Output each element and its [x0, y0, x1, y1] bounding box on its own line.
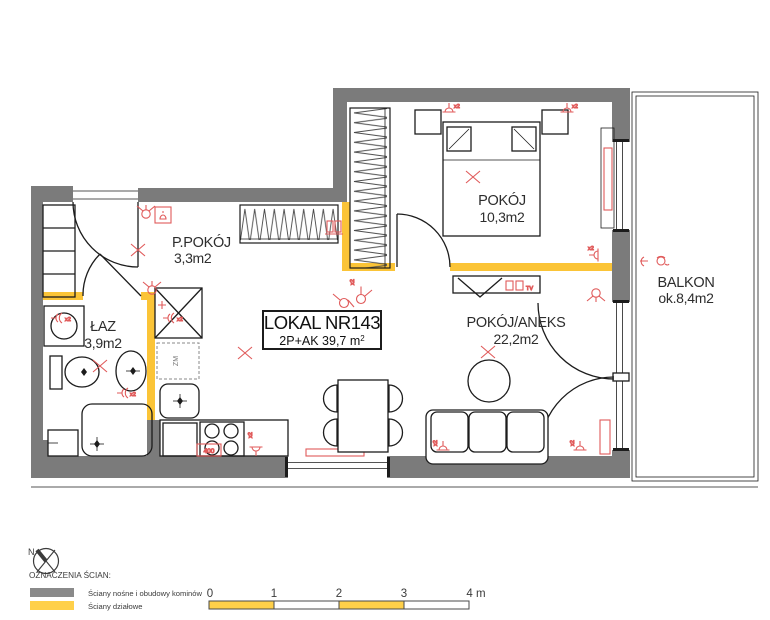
- nightstand: [415, 110, 441, 134]
- svg-text:x2: x2: [248, 432, 254, 438]
- light-point-symbol: [137, 205, 155, 218]
- room-label-ppokoj-area: 3,3m2: [174, 250, 212, 266]
- scale-tick: 2: [336, 588, 342, 600]
- wall-light-symbol: [587, 289, 605, 302]
- room-label-balkon-name: BALKON: [657, 275, 714, 291]
- bathroom-door: [83, 254, 141, 296]
- dishwasher-label: ZM: [173, 356, 180, 366]
- svg-text:x2: x2: [454, 104, 460, 110]
- svg-text:x2: x2: [572, 104, 578, 110]
- legend-label-load-bearing: Ściany nośne i obudowy kominów: [88, 589, 202, 598]
- socket-symbol: x2: [570, 440, 587, 450]
- svg-text:x2: x2: [130, 392, 136, 398]
- washer-socket-symbol: x2: [51, 313, 71, 323]
- washing-machine: [44, 306, 84, 346]
- fridge-cabinet: [163, 423, 197, 456]
- light-x-symbol: [93, 360, 107, 372]
- svg-text:400: 400: [204, 448, 215, 455]
- north-label: N: [28, 547, 35, 557]
- room-label-laz-area: 3,9m2: [84, 335, 122, 351]
- basin-socket-symbol: x2: [117, 388, 136, 398]
- sofa: [426, 410, 548, 464]
- duct-shaft: [155, 288, 202, 338]
- coffee-table-round: [468, 360, 510, 402]
- radiator: [604, 148, 612, 210]
- north-arrow-icon: N: [28, 547, 59, 574]
- dining-chair: [389, 385, 403, 412]
- dining-chair: [324, 419, 338, 446]
- scale-tick: 3: [401, 588, 407, 600]
- room-label-pokoj-area: 10,3m2: [480, 209, 525, 225]
- ceiling-light-group-symbol: x2: [333, 279, 372, 307]
- room-label-aneks-name: POKÓJ/ANEKS: [466, 314, 565, 331]
- svg-text:x2: x2: [570, 440, 576, 446]
- scale-tick: 4 m: [466, 588, 485, 600]
- kitchen-counter: [160, 420, 288, 456]
- room-label-balkon-area: ok.8,4m2: [658, 290, 714, 306]
- dining-table-set: [324, 380, 403, 452]
- room-label-laz-name: ŁAZ: [90, 319, 116, 335]
- toilet: [50, 356, 99, 389]
- scale-tick: 1: [271, 588, 277, 600]
- dining-table: [338, 380, 388, 452]
- niche: [48, 430, 78, 456]
- living-window: [285, 449, 390, 478]
- svg-text:x2: x2: [65, 317, 71, 323]
- dishwasher: ZM: [157, 343, 199, 379]
- wardrobe-hall: [240, 205, 338, 243]
- walls-legend: OZNACZENIA ŚCIAN: Ściany nośne i obudowy…: [29, 569, 202, 611]
- svg-text:x2: x2: [588, 246, 594, 252]
- legend-swatch-partition: [30, 601, 74, 610]
- light-x-symbol: [481, 346, 495, 358]
- socket-symbol: x2: [588, 246, 598, 262]
- radiator: [600, 420, 610, 454]
- cooker-socket-symbol: x2: [248, 432, 263, 456]
- room-label-pokoj-name: POKÓJ: [478, 192, 526, 209]
- bedroom-door: [397, 214, 450, 267]
- room-label-aneks-area: 22,2m2: [494, 331, 539, 347]
- title-box: LOKAL NR143 2P+AK 39,7 m2: [263, 311, 381, 349]
- svg-text:TV: TV: [526, 286, 533, 292]
- scale-bar: 0 1 2 3 4 m: [207, 588, 486, 609]
- socket-symbol: x2: [443, 103, 460, 112]
- legend-label-partition: Ściany działowe: [88, 602, 142, 611]
- nightstand: [542, 110, 568, 134]
- tv-socket-symbol: TV: [506, 281, 533, 292]
- light-x-symbol: [238, 347, 252, 359]
- entrance-door: [73, 191, 138, 267]
- balcony-light-symbol: [640, 256, 669, 266]
- shelf-unit: [43, 205, 75, 297]
- washbasin: [116, 351, 146, 391]
- wardrobe-bedroom: [350, 108, 390, 268]
- scale-tick: 0: [207, 588, 213, 600]
- legend-swatch-load-bearing: [30, 588, 74, 597]
- dining-chair: [389, 419, 403, 446]
- bedroom-window: [601, 128, 630, 232]
- unit-number: LOKAL NR143: [264, 312, 380, 333]
- floor-plan-svg: ZM: [0, 0, 770, 620]
- svg-text:x2: x2: [350, 279, 356, 285]
- svg-text:x2: x2: [177, 317, 183, 323]
- bathtub: [82, 404, 152, 456]
- kitchen-sink: [160, 384, 199, 418]
- floor-plan-page: ZM: [0, 0, 770, 620]
- svg-text:x2: x2: [433, 440, 439, 446]
- legend-heading: OZNACZENIA ŚCIAN:: [29, 569, 111, 580]
- dining-chair: [324, 385, 338, 412]
- socket-symbol: x2: [561, 103, 578, 112]
- room-label-ppokoj-name: P.POKÓJ: [172, 234, 231, 251]
- unit-summary: 2P+AK 39,7 m2: [279, 334, 365, 348]
